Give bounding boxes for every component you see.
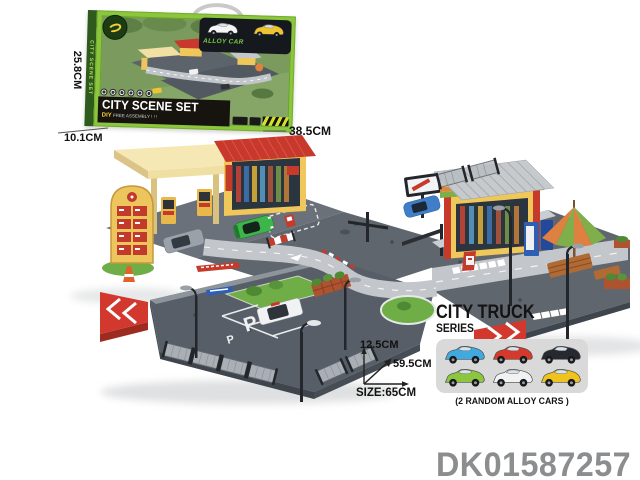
box-title-block: CITY SCENE SET DIY FREE ASSEMBLY ! ! !	[97, 89, 230, 127]
series-subtitle: SERIES	[436, 323, 584, 336]
patio	[542, 200, 630, 289]
crosswalk	[452, 259, 506, 274]
series-note: (2 RANDOM ALLOY CARS )	[438, 396, 585, 406]
product-box: CITY SCENE SET	[84, 10, 296, 132]
series-title: CITY TRUCK	[436, 303, 577, 323]
black-toy-car	[538, 344, 583, 365]
striped-barrier	[266, 230, 296, 248]
box-depth-label: 10.1CM	[64, 132, 103, 144]
window-cars	[203, 20, 287, 40]
blue-toy-car	[442, 344, 487, 365]
box-width-label: 38.5CM	[289, 124, 331, 138]
feature-icon	[109, 89, 116, 96]
left-ramp	[100, 292, 148, 342]
lamp	[180, 286, 198, 359]
box-title-strip: CITY SCENE SET DIY FREE ASSEMBLY ! ! !	[97, 97, 230, 127]
white-toy-car	[490, 367, 535, 388]
alloy-car-window: ALLOY CAR	[199, 18, 292, 55]
planter-box	[604, 274, 630, 290]
lamp	[493, 206, 512, 307]
box-spine-text: CITY SCENE SET	[87, 41, 95, 96]
feature-icon	[145, 90, 152, 97]
mini-mart	[432, 160, 556, 271]
feature-icon	[100, 89, 107, 96]
lamp	[344, 278, 361, 351]
box-bottom-strip	[232, 115, 288, 128]
traffic-cone	[123, 266, 135, 282]
box-subtitle-diy: DIY	[102, 112, 112, 118]
green-toy-car	[442, 367, 487, 388]
road-arrow	[290, 254, 302, 261]
feature-icon	[118, 89, 125, 96]
feature-icon	[127, 90, 134, 97]
box-front: ALLOY CAR CITY SCENE SET DIY FREE ASSEMB…	[93, 10, 296, 132]
blue-car	[403, 195, 442, 219]
playset-cars	[162, 195, 441, 326]
white-toy-car	[203, 20, 241, 37]
fuel-marking	[266, 204, 320, 239]
lamp	[300, 320, 321, 402]
feature-icon	[136, 90, 143, 97]
parking-letter-small: P	[225, 333, 236, 347]
barrier-gantry	[348, 212, 443, 256]
price-sign	[102, 186, 154, 276]
gray-car	[162, 228, 205, 254]
yellow-toy-car	[538, 367, 583, 388]
fuel-pump	[161, 197, 176, 224]
red-toy-car	[490, 344, 535, 365]
green-sports-car	[232, 214, 275, 240]
a-frame-sign	[462, 251, 476, 271]
series-cars	[436, 339, 588, 393]
yellow-toy-car	[249, 22, 287, 39]
series-card: CITY TRUCK SERIES (2 RANDOM ALLOY CARS )	[436, 303, 600, 406]
box-body: CITY SCENE SET	[84, 10, 296, 132]
ground-signs	[196, 262, 240, 296]
picnic-table	[547, 253, 593, 278]
brick-planter	[309, 268, 351, 297]
product-code: DK01587257	[436, 446, 631, 480]
box-height-label: 25.8CM	[71, 47, 83, 93]
size-total-label: SIZE:65CM	[356, 387, 416, 399]
size-height-label: 12.5CM	[360, 339, 399, 351]
parking-markings: P P	[222, 305, 308, 347]
curb-ticks	[321, 249, 355, 269]
hazard-stripes-icon	[262, 117, 288, 127]
gas-station	[102, 143, 320, 296]
bench	[593, 265, 620, 280]
billboard	[404, 173, 442, 218]
main-road	[204, 247, 436, 291]
product-sheet: CITY SCENE SET	[0, 0, 640, 480]
parking-letter-large: P	[241, 312, 260, 337]
box-badge	[232, 116, 247, 124]
manhole	[340, 230, 350, 235]
fuel-pump	[197, 189, 212, 216]
alloy-car-label: ALLOY CAR	[203, 38, 287, 48]
box-badge	[249, 117, 260, 125]
size-diagonal-label: 59.5CM	[393, 358, 432, 370]
planter-box	[614, 236, 630, 248]
greenery	[226, 268, 435, 324]
box-subtitle-rest: FREE ASSEMBLY ! ! !	[113, 113, 157, 119]
vending-machine	[524, 222, 539, 256]
police-car	[256, 296, 303, 325]
convenience-store	[214, 135, 316, 216]
vending-machine	[541, 220, 553, 250]
